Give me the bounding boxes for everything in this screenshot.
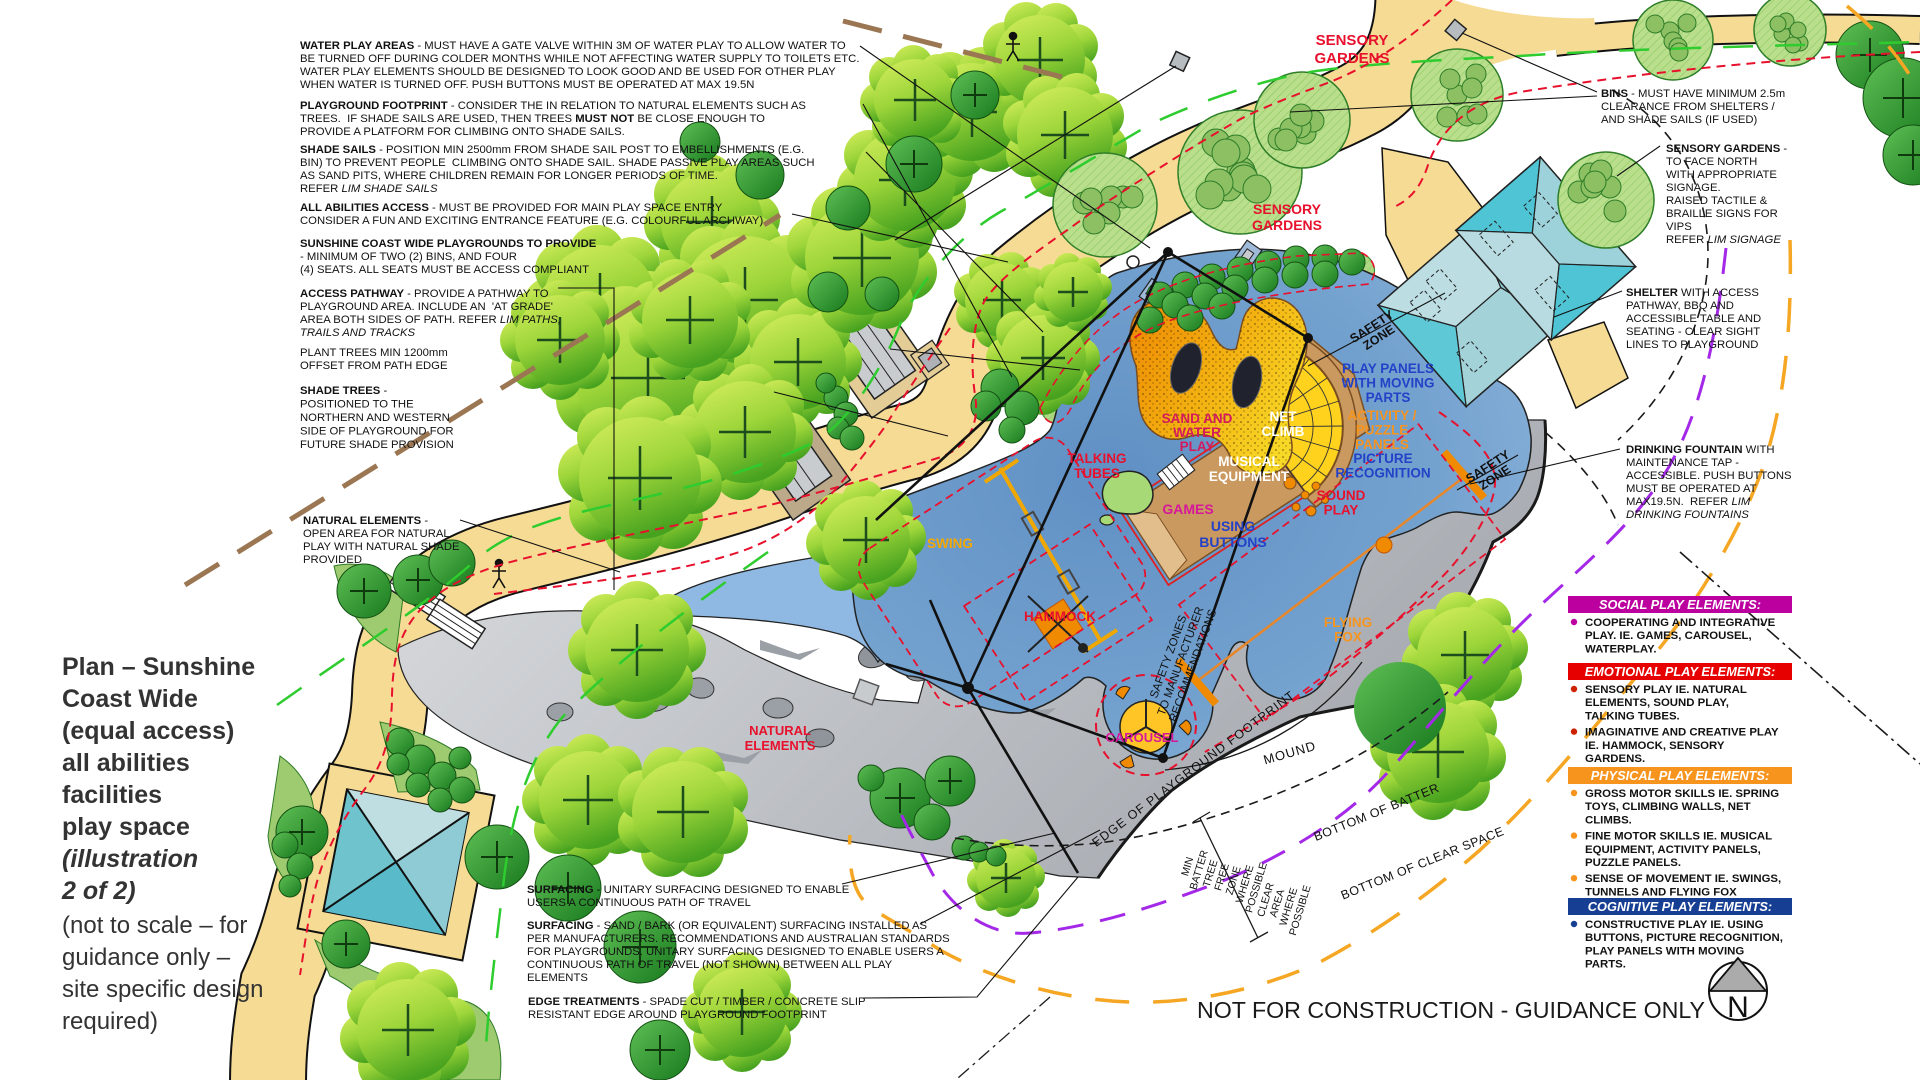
svg-text:SENSORYGARDENS: SENSORYGARDENS (1314, 32, 1389, 67)
svg-text:PHYSICAL PLAY ELEMENTS:: PHYSICAL PLAY ELEMENTS: (1591, 768, 1769, 783)
svg-text:(equal access): (equal access) (62, 717, 234, 745)
svg-text:NOT FOR CONSTRUCTION - GUIDANC: NOT FOR CONSTRUCTION - GUIDANCE ONLY (1197, 997, 1705, 1023)
svg-text:SHELTER WITH ACCESSPATHWAY, BB: SHELTER WITH ACCESSPATHWAY, BBQ ANDACCES… (1626, 287, 1761, 351)
svg-text:SOCIAL PLAY ELEMENTS:: SOCIAL PLAY ELEMENTS: (1599, 597, 1761, 612)
svg-text:SWING: SWING (927, 536, 973, 551)
svg-text:ACTIVITY /PUZZLEPANELS: ACTIVITY /PUZZLEPANELS (1348, 408, 1417, 452)
svg-text:SOUNDPLAY: SOUNDPLAY (1317, 488, 1366, 518)
svg-text:all abilities: all abilities (62, 749, 190, 777)
svg-text:Plan – Sunshine: Plan – Sunshine (62, 653, 255, 681)
svg-text:ALL ABILITIES ACCESS - MUST BE: ALL ABILITIES ACCESS - MUST BE PROVIDED … (300, 202, 763, 227)
svg-text:COOPERATING AND INTEGRATIVE: COOPERATING AND INTEGRATIVE (1585, 617, 1776, 629)
svg-text:EDGE TREATMENTS - SPADE CUT /: EDGE TREATMENTS - SPADE CUT / TIMBER / C… (528, 996, 866, 1021)
svg-text:(illustration: (illustration (62, 845, 198, 873)
svg-text:SENSE OF MOVEMENT IE. SWINGS,: SENSE OF MOVEMENT IE. SWINGS, (1585, 873, 1781, 885)
svg-text:GAMES: GAMES (1162, 501, 1213, 517)
svg-text:facilities: facilities (62, 781, 162, 809)
svg-text:site specific design: site specific design (62, 976, 263, 1003)
svg-text:TUNNELS AND FLYING FOX: TUNNELS AND FLYING FOX (1585, 886, 1737, 898)
svg-text:EMOTIONAL PLAY ELEMENTS:: EMOTIONAL PLAY ELEMENTS: (1585, 664, 1776, 679)
svg-text:PLAY PANELS WITH MOVING: PLAY PANELS WITH MOVING (1585, 945, 1744, 957)
svg-text:SENSORYGARDENS: SENSORYGARDENS (1252, 201, 1322, 233)
svg-text:EQUIPMENT, ACTIVITY PANELS,: EQUIPMENT, ACTIVITY PANELS, (1585, 844, 1761, 856)
svg-text:COGNITIVE PLAY ELEMENTS:: COGNITIVE PLAY ELEMENTS: (1588, 899, 1772, 914)
svg-text:required): required) (62, 1008, 158, 1035)
svg-text:PLANT TREES MIN 1200mmOFFSET F: PLANT TREES MIN 1200mmOFFSET FROM PATH E… (300, 347, 448, 372)
svg-text:SENSORY PLAY IE. NATURAL: SENSORY PLAY IE. NATURAL (1585, 684, 1747, 696)
svg-text:PLAY. IE. GAMES, CAROUSEL,: PLAY. IE. GAMES, CAROUSEL, (1585, 630, 1752, 642)
svg-text:GROSS MOTOR SKILLS IE. SPRING: GROSS MOTOR SKILLS IE. SPRING (1585, 788, 1779, 800)
svg-text:CONSTRUCTIVE PLAY IE. USING: CONSTRUCTIVE PLAY IE. USING (1585, 919, 1764, 931)
svg-text:NATURALELEMENTS: NATURALELEMENTS (745, 723, 816, 753)
svg-text:FINE MOTOR SKILLS IE. MUSICAL: FINE MOTOR SKILLS IE. MUSICAL (1585, 831, 1772, 843)
svg-text:guidance only –: guidance only – (62, 944, 231, 971)
svg-text:MUSICALEQUIPMENT: MUSICALEQUIPMENT (1209, 454, 1290, 484)
svg-text:GARDENS.: GARDENS. (1585, 753, 1645, 765)
svg-text:Coast Wide: Coast Wide (62, 685, 198, 713)
svg-text:WATERPLAY.: WATERPLAY. (1585, 643, 1657, 655)
svg-text:PARTS.: PARTS. (1585, 959, 1626, 971)
svg-text:TOYS, CLIMBING WALLS, NET: TOYS, CLIMBING WALLS, NET (1585, 801, 1751, 813)
svg-text:TALKING TUBES.: TALKING TUBES. (1585, 710, 1680, 722)
svg-text:TALKINGTUBES: TALKINGTUBES (1068, 451, 1127, 481)
svg-text:N: N (1727, 991, 1749, 1024)
svg-text:IMAGINATIVE AND CREATIVE PLAY: IMAGINATIVE AND CREATIVE PLAY (1585, 727, 1779, 739)
svg-text:PUZZLE PANELS.: PUZZLE PANELS. (1585, 857, 1681, 869)
svg-text:CAROUSEL: CAROUSEL (1106, 730, 1179, 745)
svg-text:ELEMENTS, SOUND PLAY,: ELEMENTS, SOUND PLAY, (1585, 697, 1729, 709)
svg-text:play space: play space (62, 813, 190, 841)
svg-text:IE. HAMMOCK, SENSORY: IE. HAMMOCK, SENSORY (1585, 740, 1725, 752)
svg-text:2 of 2): 2 of 2) (61, 877, 136, 905)
svg-text:CLIMBS.: CLIMBS. (1585, 814, 1632, 826)
svg-text:HAMMOCK: HAMMOCK (1024, 609, 1096, 624)
svg-text:(not to scale – for: (not to scale – for (62, 912, 247, 939)
svg-text:BUTTONS, PICTURE RECOGNITION,: BUTTONS, PICTURE RECOGNITION, (1585, 932, 1783, 944)
